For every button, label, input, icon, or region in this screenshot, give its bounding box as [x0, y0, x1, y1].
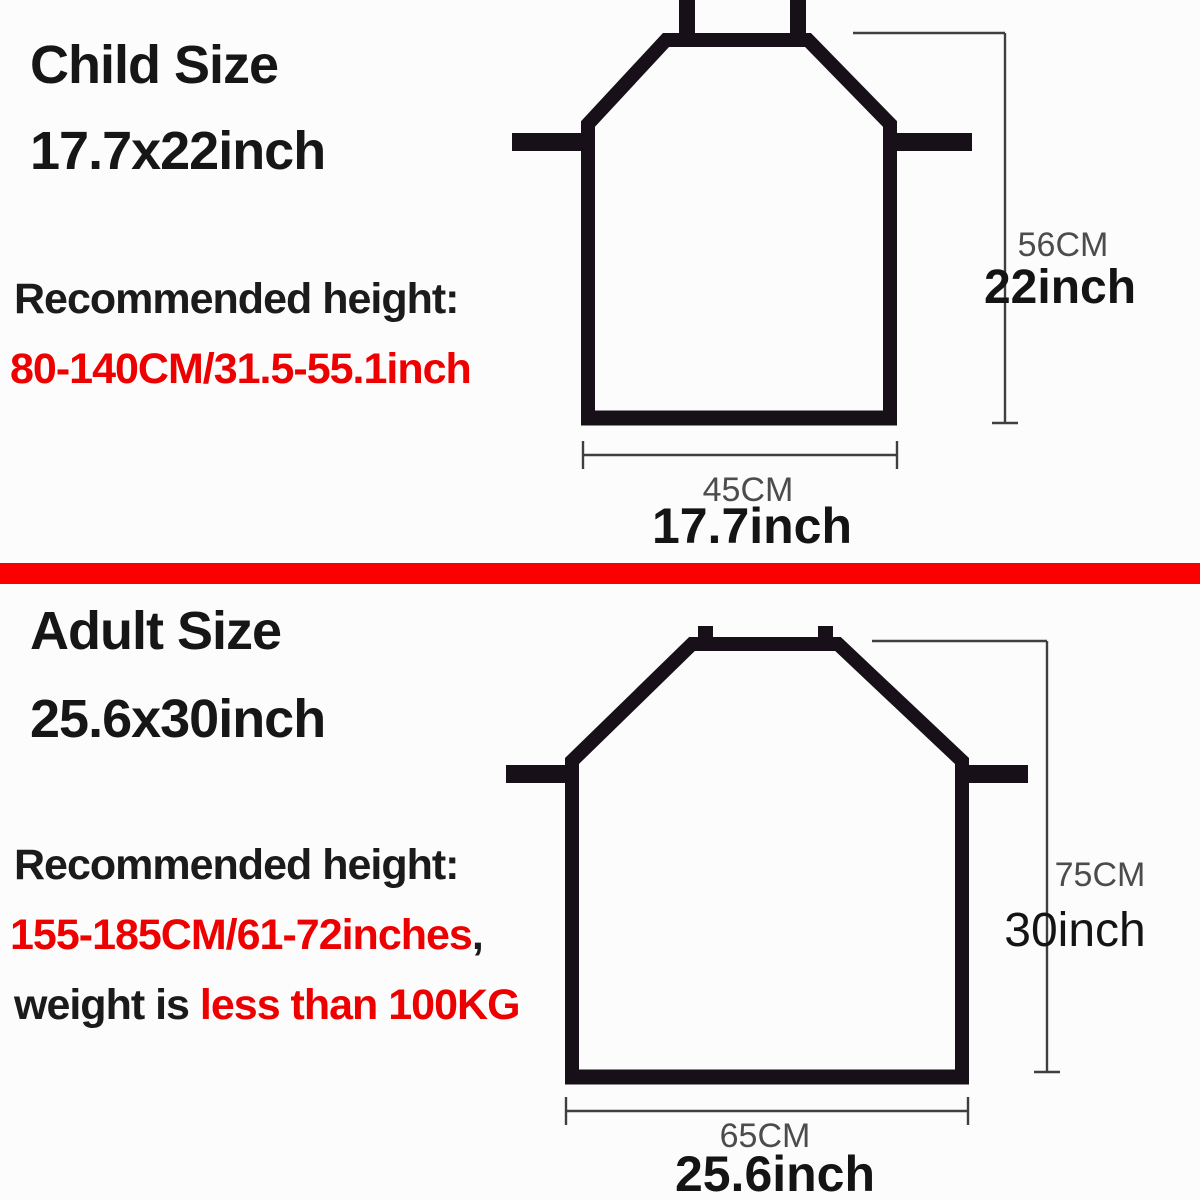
size-chart-page: { "colors": { "divider_red": "#fb0000", …	[0, 0, 1200, 1200]
child-size-panel: Child Size 17.7x22inch Recommended heigh…	[0, 0, 1200, 564]
adult-apron-diagram: 75CM 30inch 65CM 25.6inch	[0, 584, 1200, 1200]
adult-size-panel: Adult Size 25.6x30inch Recommended heigh…	[0, 584, 1200, 1200]
child-height-cm-label: 56CM	[1018, 226, 1109, 264]
child-apron-diagram: 56CM 22inch 45CM 17.7inch	[0, 0, 1200, 564]
section-divider	[0, 563, 1200, 584]
child-height-inch-label: 22inch	[984, 261, 1136, 314]
adult-height-inch-label: 30inch	[1004, 904, 1145, 957]
adult-apron-outline	[572, 644, 962, 1080]
adult-width-inch-label: 25.6inch	[675, 1146, 875, 1200]
child-width-inch-label: 17.7inch	[652, 498, 852, 554]
child-apron-outline	[588, 40, 890, 421]
adult-height-cm-label: 75CM	[1055, 856, 1146, 894]
